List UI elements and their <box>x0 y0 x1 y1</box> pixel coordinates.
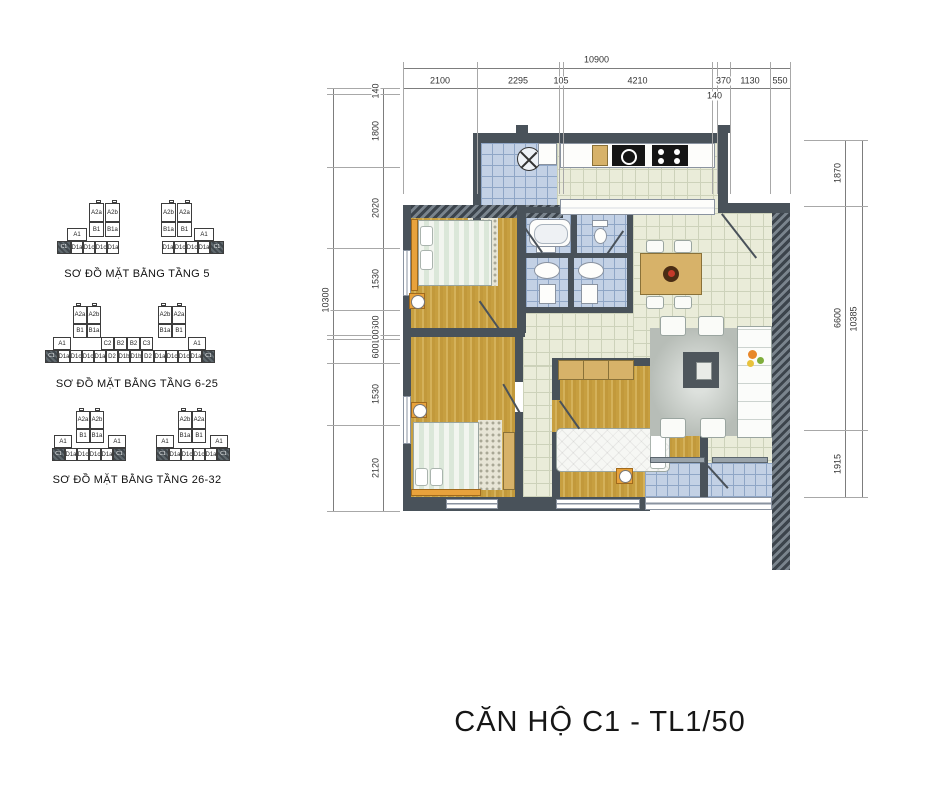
kitchen-sink-basin <box>621 149 637 165</box>
dining-chair-4 <box>674 296 692 309</box>
wall-cap-1 <box>516 125 528 133</box>
kitchen-cabinet <box>592 145 608 166</box>
wall-bath-divider-upper <box>571 213 577 258</box>
cooktop-burner <box>658 149 664 155</box>
pebble-strip-bedroom2 <box>478 420 502 490</box>
bed1-pillow-1 <box>420 226 433 246</box>
toilet-tank <box>592 220 608 227</box>
wall-bath-bottom <box>526 307 633 313</box>
wall-top-kitchen <box>473 133 728 143</box>
bed2-lamp <box>413 404 427 418</box>
bedroom2-wardrobe <box>503 432 515 490</box>
fruit-yellow <box>747 360 754 367</box>
wall-bedroom1-bedroom2 <box>403 328 525 337</box>
washbasin-1 <box>534 262 560 279</box>
bed1-lamp <box>411 295 425 309</box>
wall-right-kitchen <box>718 133 728 213</box>
wall-cap-2 <box>718 125 730 133</box>
window-bedroom2-west <box>403 396 411 444</box>
blueprint-canvas: A2aA2bB1B1aA1C1D1aD1cD1cD1aA2bA2aB1aB1A1… <box>0 0 940 791</box>
bed2-headboard <box>411 489 481 496</box>
dining-chair-3 <box>646 296 664 309</box>
armchair-2 <box>698 316 724 336</box>
hallway-floor-2 <box>523 366 552 497</box>
fruit-green <box>757 357 764 364</box>
bed3-lamp <box>619 470 632 483</box>
plan-title: CĂN HỘ C1 - TL1/50 <box>425 706 775 739</box>
bed1-headboard <box>411 219 418 291</box>
bed1-pillow-2 <box>420 250 433 270</box>
wc-fixture-2 <box>581 284 598 304</box>
cooktop <box>652 145 688 166</box>
floor-plan <box>0 0 940 791</box>
bedroom3-wardrobe <box>558 360 634 380</box>
coffee-table-tray <box>696 362 712 380</box>
bed2-pillow-1 <box>415 468 428 486</box>
armchair-1 <box>660 316 686 336</box>
balcony-door-rail-1 <box>650 457 705 463</box>
wall-bedroom2-right-lower <box>515 412 523 497</box>
washbasin-2 <box>578 262 604 279</box>
wall-bedroom2-right-upper <box>515 337 523 382</box>
wall-bath-divider-lower <box>568 258 574 312</box>
toilet-bowl <box>594 228 607 244</box>
fruit-orange <box>748 350 757 359</box>
wc-fixture-1 <box>539 284 556 304</box>
window-bedroom3-south <box>556 499 640 509</box>
dining-chair-1 <box>646 240 664 253</box>
sofa <box>737 326 772 438</box>
wall-bath-right <box>627 213 633 313</box>
dining-bowl-fruit <box>668 270 675 277</box>
laundry-door-panel <box>538 143 557 165</box>
balcony-sill <box>645 497 772 510</box>
balcony-door-rail-2 <box>712 457 768 463</box>
dining-chair-2 <box>674 240 692 253</box>
armchair-3 <box>660 418 686 438</box>
window-bedroom2-south <box>446 499 498 509</box>
kitchen-island-counter <box>560 199 715 215</box>
wall-top-living <box>718 203 790 213</box>
bed2-pillow-2 <box>430 468 443 486</box>
window-bedroom1-west <box>403 250 411 296</box>
bathtub-inner <box>534 224 568 244</box>
armchair-4 <box>700 418 726 438</box>
wall-right-exterior <box>772 213 790 570</box>
